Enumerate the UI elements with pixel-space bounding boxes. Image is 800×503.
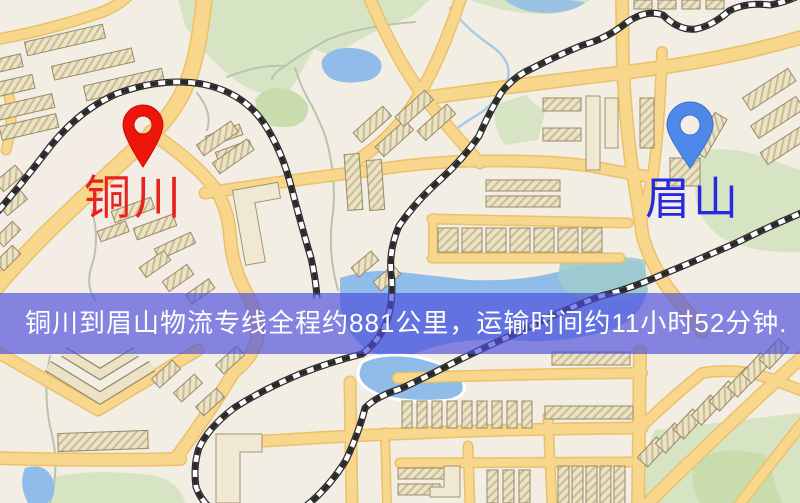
route-info-banner: 铜川到眉山物流专线全程约881公里，运输时间约11小时52分钟. [0, 293, 800, 354]
map-image [0, 0, 800, 503]
route-info-text: 铜川到眉山物流专线全程约881公里，运输时间约11小时52分钟. [0, 293, 800, 354]
origin-label: 铜川 [84, 174, 184, 221]
destination-label: 眉山 [645, 176, 741, 221]
map-canvas: 铜川 眉山 铜川到眉山物流专线全程约881公里，运输时间约11小时52分钟. [0, 0, 800, 503]
